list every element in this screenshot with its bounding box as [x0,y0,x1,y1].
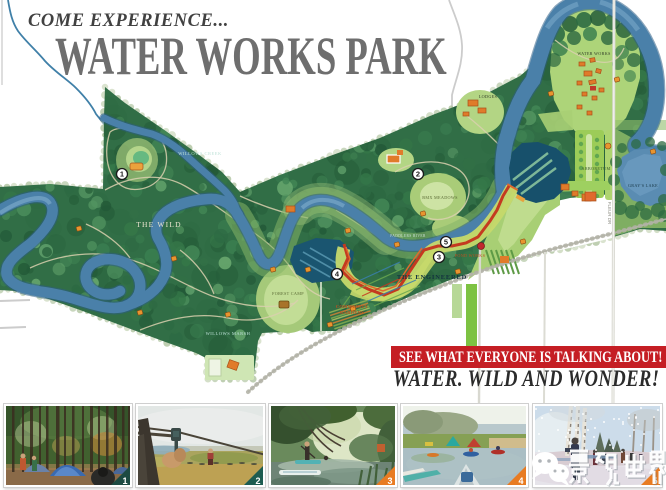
svg-text:3: 3 [387,476,392,485]
svg-text:GRAY'S LAKE: GRAY'S LAKE [628,183,658,188]
svg-text:FLEUR DR: FLEUR DR [607,202,612,225]
svg-text:LODGES: LODGES [479,94,498,99]
svg-text:2: 2 [416,170,420,179]
svg-text:WATER WORKS: WATER WORKS [577,51,611,56]
svg-text:WILLOWS CREEK: WILLOWS CREEK [178,151,222,156]
svg-text:4: 4 [518,476,523,485]
svg-text:GARDENS: GARDENS [340,310,364,315]
svg-text:THE WILD: THE WILD [136,220,182,229]
svg-text:PADDLERS RIVER: PADDLERS RIVER [390,234,426,238]
svg-text:1: 1 [120,170,124,179]
svg-text:BMX MEADOWS: BMX MEADOWS [422,195,458,200]
svg-text:POND WORKS: POND WORKS [455,253,486,258]
svg-text:1: 1 [122,476,127,485]
svg-text:ARBORETUM: ARBORETUM [582,166,611,171]
svg-text:WILLOWS MARSH: WILLOWS MARSH [206,331,251,336]
svg-text:FOREST CAMP: FOREST CAMP [272,291,304,296]
svg-text:THE ENGINEERED: THE ENGINEERED [397,274,467,281]
svg-text:2: 2 [255,476,260,485]
svg-text:5: 5 [444,238,448,247]
svg-text:COMMUNITY: COMMUNITY [336,304,369,309]
svg-text:3: 3 [437,253,441,262]
